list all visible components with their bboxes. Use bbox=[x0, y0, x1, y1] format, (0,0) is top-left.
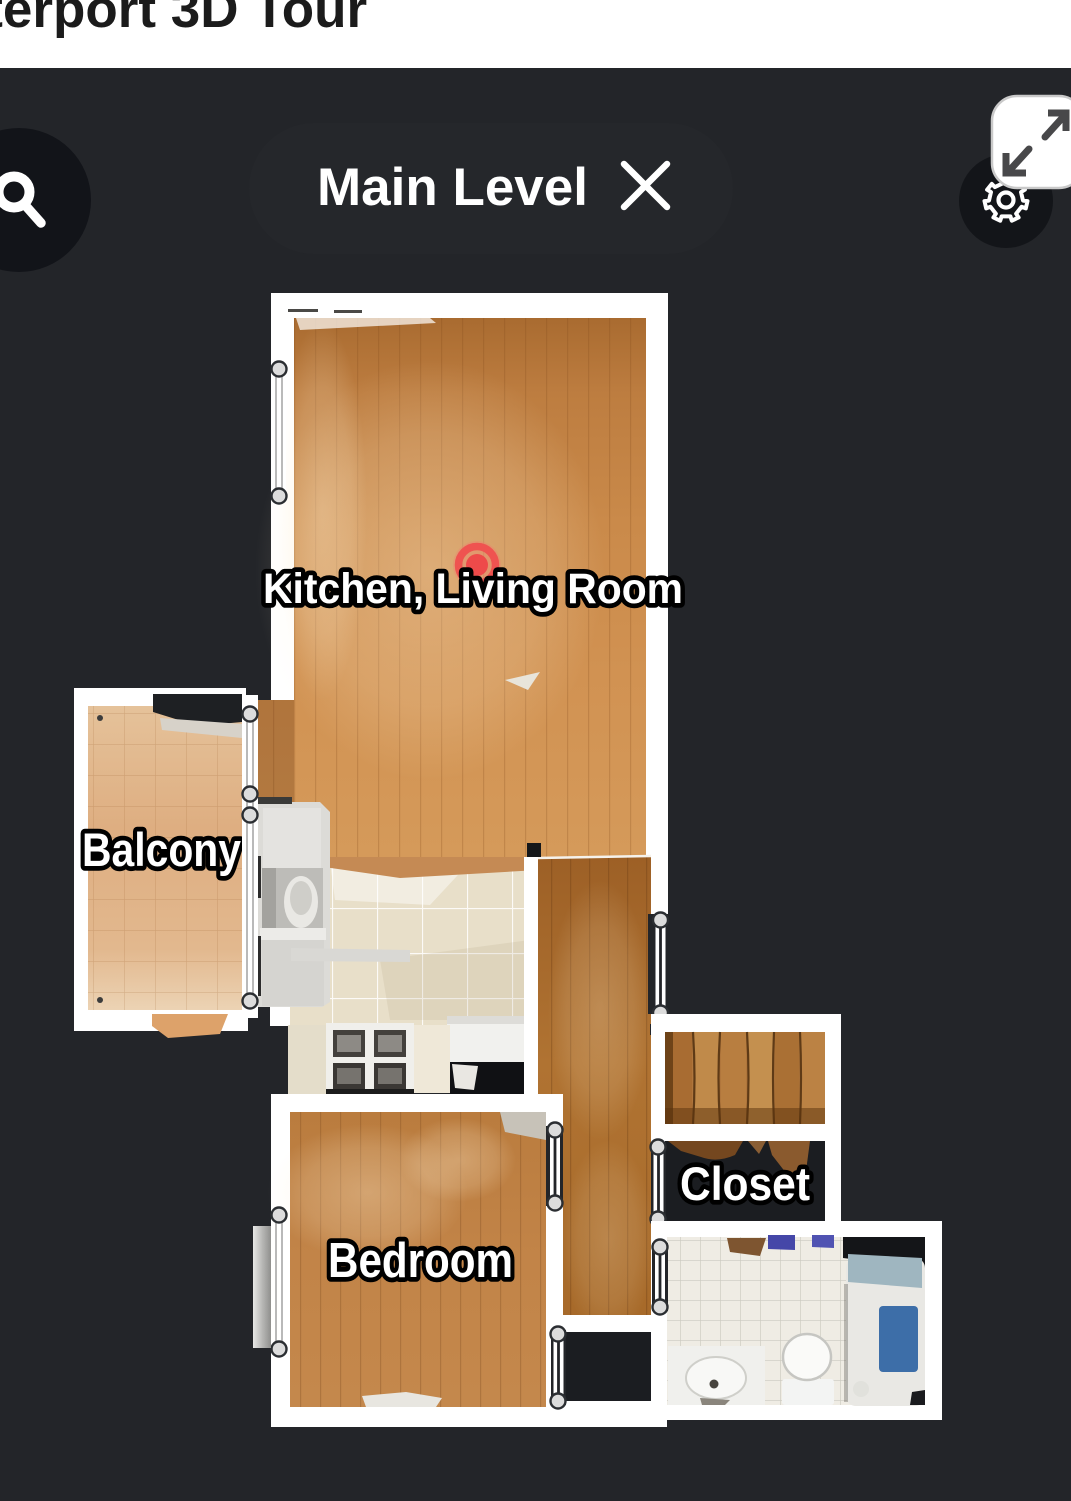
svg-text:Kitchen, Living Room: Kitchen, Living Room bbox=[263, 565, 683, 613]
svg-text:Main Level: Main Level bbox=[317, 158, 588, 217]
svg-text:Closet: Closet bbox=[680, 1157, 810, 1210]
svg-text:Bedroom: Bedroom bbox=[328, 1234, 513, 1288]
svg-text:Balcony: Balcony bbox=[82, 823, 241, 876]
